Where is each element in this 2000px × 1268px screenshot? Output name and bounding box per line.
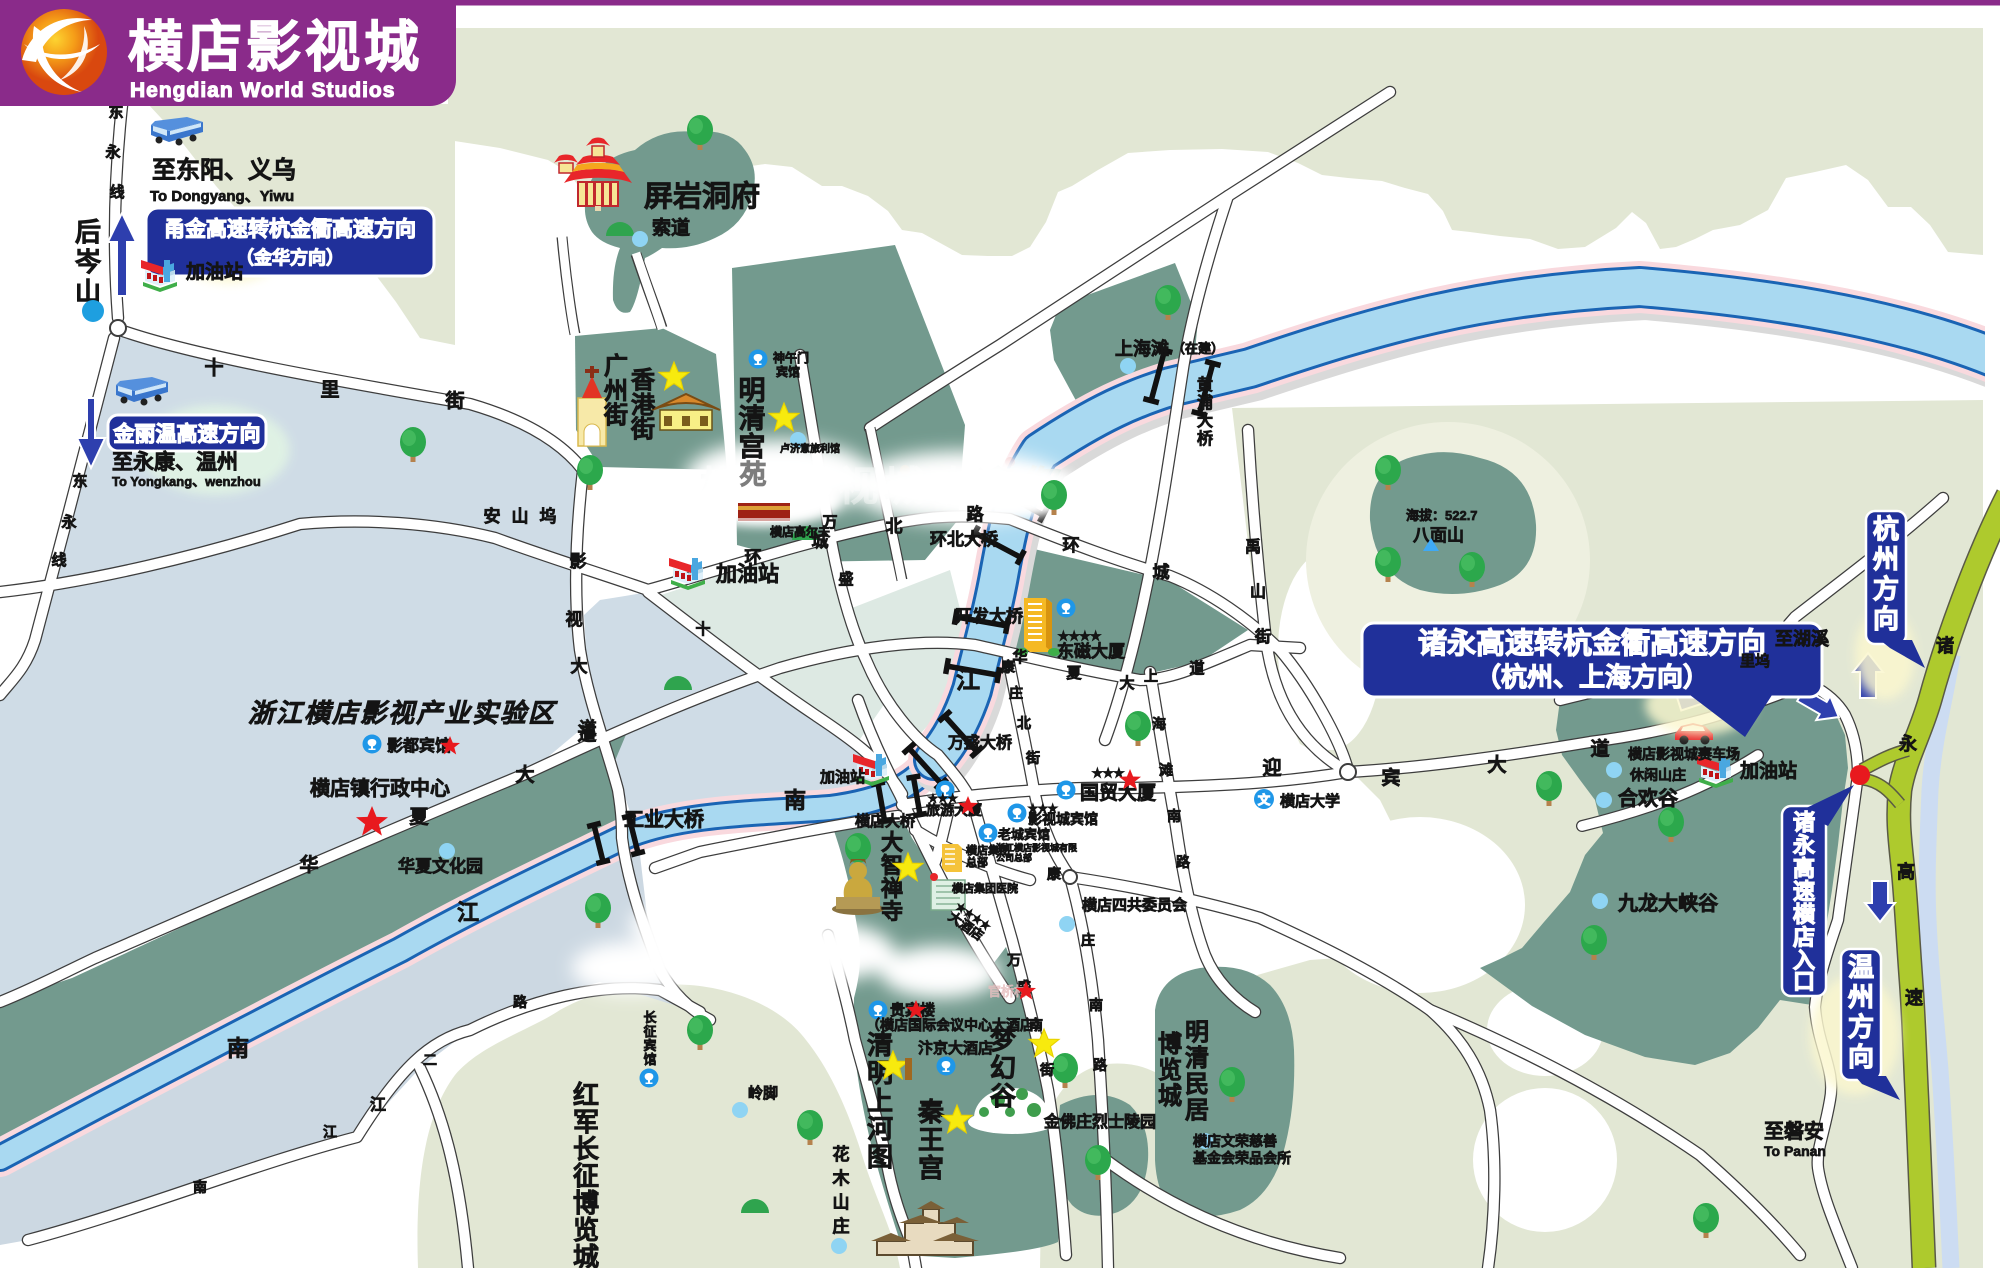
svg-text:永: 永 <box>104 143 121 161</box>
svg-text:大: 大 <box>571 656 588 676</box>
svg-text:迎: 迎 <box>1262 756 1281 779</box>
svg-text:江: 江 <box>370 1096 386 1114</box>
svg-text:东: 东 <box>72 472 87 490</box>
svg-text:汴京大酒店: 汴京大酒店 <box>918 1039 993 1057</box>
svg-text:大: 大 <box>1119 674 1134 692</box>
svg-text:高: 高 <box>1793 856 1815 881</box>
svg-text:诸: 诸 <box>1936 635 1954 656</box>
svg-text:路: 路 <box>1093 1057 1108 1073</box>
svg-text:红: 红 <box>573 1080 599 1110</box>
svg-text:影都宾馆: 影都宾馆 <box>387 736 451 755</box>
svg-text:To Panan: To Panan <box>1764 1143 1826 1159</box>
svg-text:大: 大 <box>1197 411 1213 430</box>
svg-text:方: 方 <box>1848 1012 1874 1042</box>
svg-text:线: 线 <box>51 551 66 569</box>
svg-text:横店集团医院: 横店集团医院 <box>952 881 1018 895</box>
svg-text:山: 山 <box>1250 583 1266 601</box>
svg-text:博: 博 <box>573 1188 599 1218</box>
svg-text:南: 南 <box>193 1179 207 1195</box>
svg-text:街: 街 <box>1254 627 1271 646</box>
svg-text:长: 长 <box>643 1010 657 1025</box>
svg-text:横店大学: 横店大学 <box>1280 792 1340 810</box>
svg-text:横: 横 <box>1793 902 1815 927</box>
svg-text:口: 口 <box>1793 969 1815 994</box>
svg-text:里: 里 <box>320 379 339 401</box>
svg-text:军: 军 <box>573 1107 599 1137</box>
svg-text:合欢谷: 合欢谷 <box>1618 786 1679 810</box>
svg-text:康: 康 <box>1001 659 1016 675</box>
svg-text:万盛大桥: 万盛大桥 <box>947 733 1013 752</box>
svg-text:广: 广 <box>604 352 628 380</box>
svg-text:街: 街 <box>444 389 464 412</box>
svg-text:街: 街 <box>630 415 655 443</box>
svg-text:秦: 秦 <box>917 1097 945 1127</box>
svg-text:庄: 庄 <box>833 1216 850 1236</box>
svg-text:城: 城 <box>1153 563 1170 582</box>
svg-text:永: 永 <box>1793 833 1815 858</box>
svg-text:城: 城 <box>812 532 829 551</box>
svg-text:浦: 浦 <box>1197 393 1213 412</box>
svg-text:万: 万 <box>821 514 837 531</box>
svg-text:至湖溪: 至湖溪 <box>1775 629 1830 649</box>
svg-text:十: 十 <box>695 620 710 638</box>
svg-text:八面山: 八面山 <box>1413 526 1464 545</box>
svg-text:夏: 夏 <box>1065 665 1082 682</box>
svg-text:征: 征 <box>643 1024 656 1039</box>
svg-text:横店影视城: 横店影视城 <box>128 16 423 78</box>
svg-text:★★★★: ★★★★ <box>1058 629 1101 643</box>
svg-text:向: 向 <box>1848 1042 1874 1072</box>
svg-text:十: 十 <box>204 356 223 379</box>
svg-text:河: 河 <box>867 1114 893 1144</box>
svg-text:明: 明 <box>739 376 766 406</box>
svg-text:路: 路 <box>513 994 528 1010</box>
svg-text:休闲山庄: 休闲山庄 <box>1629 767 1686 783</box>
svg-text:禹: 禹 <box>1245 537 1261 556</box>
svg-text:（在建）: （在建） <box>1172 341 1224 356</box>
svg-text:浙江横店影视产业实验区: 浙江横店影视产业实验区 <box>248 698 558 728</box>
svg-text:馆: 馆 <box>643 1052 656 1067</box>
svg-text:州: 州 <box>1848 982 1874 1012</box>
svg-text:览: 览 <box>1158 1056 1182 1084</box>
svg-text:上: 上 <box>867 1086 893 1116</box>
svg-text:里坞: 里坞 <box>1740 652 1770 670</box>
svg-text:宾: 宾 <box>1381 766 1400 789</box>
svg-text:盛: 盛 <box>838 570 853 588</box>
svg-text:征: 征 <box>573 1161 599 1191</box>
svg-text:梦: 梦 <box>990 1025 1017 1055</box>
svg-text:文: 文 <box>1258 792 1271 807</box>
svg-text:横店大桥: 横店大桥 <box>855 812 916 830</box>
svg-text:南: 南 <box>1089 997 1103 1013</box>
svg-text:横店镇行政中心: 横店镇行政中心 <box>310 776 450 800</box>
svg-text:万: 万 <box>1006 952 1021 968</box>
svg-text:高: 高 <box>1897 861 1915 882</box>
svg-text:东磁大厦: 东磁大厦 <box>1057 641 1126 661</box>
svg-text:横店文荣慈善: 横店文荣慈善 <box>1193 1133 1277 1149</box>
svg-text:环: 环 <box>1063 536 1080 555</box>
svg-text:康: 康 <box>1047 866 1062 882</box>
svg-text:速: 速 <box>1905 987 1923 1008</box>
svg-text:大: 大 <box>515 763 534 786</box>
svg-text:大: 大 <box>881 830 903 855</box>
svg-text:海: 海 <box>1152 716 1166 732</box>
svg-text:华: 华 <box>299 853 318 876</box>
svg-text:宫: 宫 <box>739 431 766 462</box>
svg-text:视: 视 <box>566 609 583 629</box>
svg-text:幻: 幻 <box>990 1053 1016 1083</box>
svg-text:桥: 桥 <box>1197 429 1214 448</box>
svg-text:加油站: 加油站 <box>185 260 243 283</box>
svg-text:诸: 诸 <box>1793 810 1815 835</box>
svg-text:横店影视城赛车场: 横店影视城赛车场 <box>1628 746 1740 762</box>
svg-text:横店集团: 横店集团 <box>966 843 1010 857</box>
svg-text:山: 山 <box>512 507 529 526</box>
svg-text:图: 图 <box>867 1142 893 1172</box>
svg-text:线: 线 <box>109 183 124 201</box>
svg-text:街: 街 <box>1039 1062 1054 1078</box>
svg-text:民: 民 <box>1185 1071 1209 1098</box>
svg-text:路: 路 <box>967 504 985 524</box>
svg-text:上: 上 <box>1144 668 1158 684</box>
svg-text:港: 港 <box>631 392 656 419</box>
svg-text:岑: 岑 <box>75 247 102 277</box>
svg-text:宾: 宾 <box>643 1038 656 1053</box>
svg-text:店: 店 <box>1793 925 1815 950</box>
svg-text:影视城宾馆: 影视城宾馆 <box>1028 811 1098 827</box>
svg-text:国贸大厦: 国贸大厦 <box>1080 781 1157 804</box>
svg-text:神午门: 神午门 <box>773 350 809 365</box>
svg-text:索道: 索道 <box>652 216 690 239</box>
svg-text:道: 道 <box>1590 737 1609 760</box>
svg-text:横店四共委员会: 横店四共委员会 <box>1082 896 1187 914</box>
svg-text:清: 清 <box>867 1030 893 1060</box>
svg-text:州: 州 <box>604 378 628 405</box>
svg-text:至磐安: 至磐安 <box>1764 1119 1824 1143</box>
svg-text:To Yongkang、wenzhou: To Yongkang、wenzhou <box>112 474 261 489</box>
svg-text:总部: 总部 <box>966 855 988 869</box>
svg-text:路: 路 <box>1176 854 1191 870</box>
svg-text:温: 温 <box>1848 952 1874 982</box>
svg-text:江: 江 <box>956 667 980 694</box>
svg-text:方: 方 <box>1873 574 1899 604</box>
svg-text:开发大桥: 开发大桥 <box>955 606 1024 626</box>
svg-text:江: 江 <box>457 900 479 925</box>
svg-text:工业大桥: 工业大桥 <box>624 808 705 831</box>
svg-text:长: 长 <box>573 1134 600 1164</box>
svg-text:州: 州 <box>1873 544 1899 574</box>
svg-text:金佛庄烈士陵园: 金佛庄烈士陵园 <box>1043 1112 1156 1131</box>
svg-text:加油站: 加油站 <box>1739 759 1797 782</box>
svg-text:老城宾馆: 老城宾馆 <box>997 827 1050 842</box>
svg-text:花: 花 <box>833 1144 850 1164</box>
svg-text:宾馆: 宾馆 <box>776 364 800 379</box>
svg-text:环: 环 <box>745 548 762 567</box>
svg-text:至永康、温州: 至永康、温州 <box>112 450 238 474</box>
svg-text:环北大桥: 环北大桥 <box>930 529 999 549</box>
svg-text:街: 街 <box>603 401 628 429</box>
svg-text:速: 速 <box>1793 879 1815 904</box>
svg-text:庄: 庄 <box>1009 685 1023 701</box>
svg-text:城: 城 <box>1158 1082 1182 1110</box>
svg-text:海拔：522.7: 海拔：522.7 <box>1406 508 1478 523</box>
svg-text:谷: 谷 <box>990 1081 1017 1111</box>
svg-text:加油站: 加油站 <box>819 768 865 786</box>
svg-text:北: 北 <box>1017 715 1031 731</box>
svg-text:南: 南 <box>1167 808 1181 824</box>
svg-text:（金华方向）: （金华方向） <box>236 247 344 268</box>
svg-text:二: 二 <box>423 1052 437 1068</box>
svg-text:寺: 寺 <box>881 899 903 924</box>
svg-text:香: 香 <box>631 367 656 394</box>
svg-text:山: 山 <box>833 1193 850 1212</box>
svg-text:南: 南 <box>227 1036 249 1061</box>
svg-text:影: 影 <box>570 552 587 571</box>
svg-text:北: 北 <box>886 517 903 536</box>
svg-text:王: 王 <box>918 1125 944 1155</box>
svg-text:清: 清 <box>739 404 766 434</box>
svg-text:木: 木 <box>832 1168 851 1188</box>
svg-text:黄: 黄 <box>1197 375 1213 394</box>
svg-text:览: 览 <box>573 1215 599 1245</box>
svg-text:夏: 夏 <box>409 806 429 828</box>
svg-text:南: 南 <box>784 788 806 813</box>
svg-text:屏岩洞府: 屏岩洞府 <box>644 179 760 213</box>
svg-text:杭: 杭 <box>1873 514 1899 544</box>
svg-text:道: 道 <box>577 722 596 745</box>
svg-text:后: 后 <box>75 217 101 247</box>
svg-text:向: 向 <box>1873 604 1899 634</box>
svg-text:清: 清 <box>1185 1045 1209 1072</box>
svg-text:上海滩: 上海滩 <box>1115 338 1169 359</box>
svg-text:苑: 苑 <box>740 460 767 490</box>
svg-text:城: 城 <box>573 1242 599 1268</box>
svg-text:永: 永 <box>1898 733 1917 754</box>
svg-text:坞: 坞 <box>540 506 557 526</box>
svg-text:江: 江 <box>323 1124 337 1140</box>
svg-text:岭脚: 岭脚 <box>748 1084 778 1102</box>
svg-text:道: 道 <box>1189 659 1204 677</box>
svg-text:To Dongyang、Yiwu: To Dongyang、Yiwu <box>150 188 294 205</box>
svg-text:诸永高速转杭金衢高速方向: 诸永高速转杭金衢高速方向 <box>1418 626 1766 660</box>
svg-text:（杭州、上海方向）: （杭州、上海方向） <box>1475 662 1709 692</box>
svg-text:居: 居 <box>1185 1097 1209 1124</box>
svg-text:安: 安 <box>484 506 501 526</box>
svg-text:庄: 庄 <box>1081 932 1095 948</box>
svg-text:至东阳、义乌: 至东阳、义乌 <box>152 156 296 184</box>
svg-text:大: 大 <box>1487 753 1506 776</box>
svg-text:华夏文化园: 华夏文化园 <box>398 856 483 876</box>
svg-text:九龙大峡谷: 九龙大峡谷 <box>1617 891 1719 915</box>
svg-text:Hengdian World Studios: Hengdian World Studios <box>130 79 395 102</box>
svg-text:甬金高速转杭金衢高速方向: 甬金高速转杭金衢高速方向 <box>164 217 416 241</box>
svg-text:卢济意旅利馆: 卢济意旅利馆 <box>780 442 840 455</box>
svg-text:★★★: ★★★ <box>1092 766 1125 780</box>
svg-text:（横店国际会议中心大酒店）: （横店国际会议中心大酒店） <box>866 1017 1048 1033</box>
svg-text:金丽温高速方向: 金丽温高速方向 <box>113 422 261 446</box>
svg-text:街: 街 <box>1025 750 1040 766</box>
svg-text:基金会荣品会所: 基金会荣品会所 <box>1193 1150 1291 1166</box>
svg-text:滩: 滩 <box>1159 762 1173 778</box>
svg-text:永: 永 <box>60 513 77 531</box>
svg-text:明: 明 <box>1185 1019 1209 1046</box>
svg-text:宫: 宫 <box>918 1153 944 1183</box>
svg-text:博: 博 <box>1158 1031 1182 1058</box>
